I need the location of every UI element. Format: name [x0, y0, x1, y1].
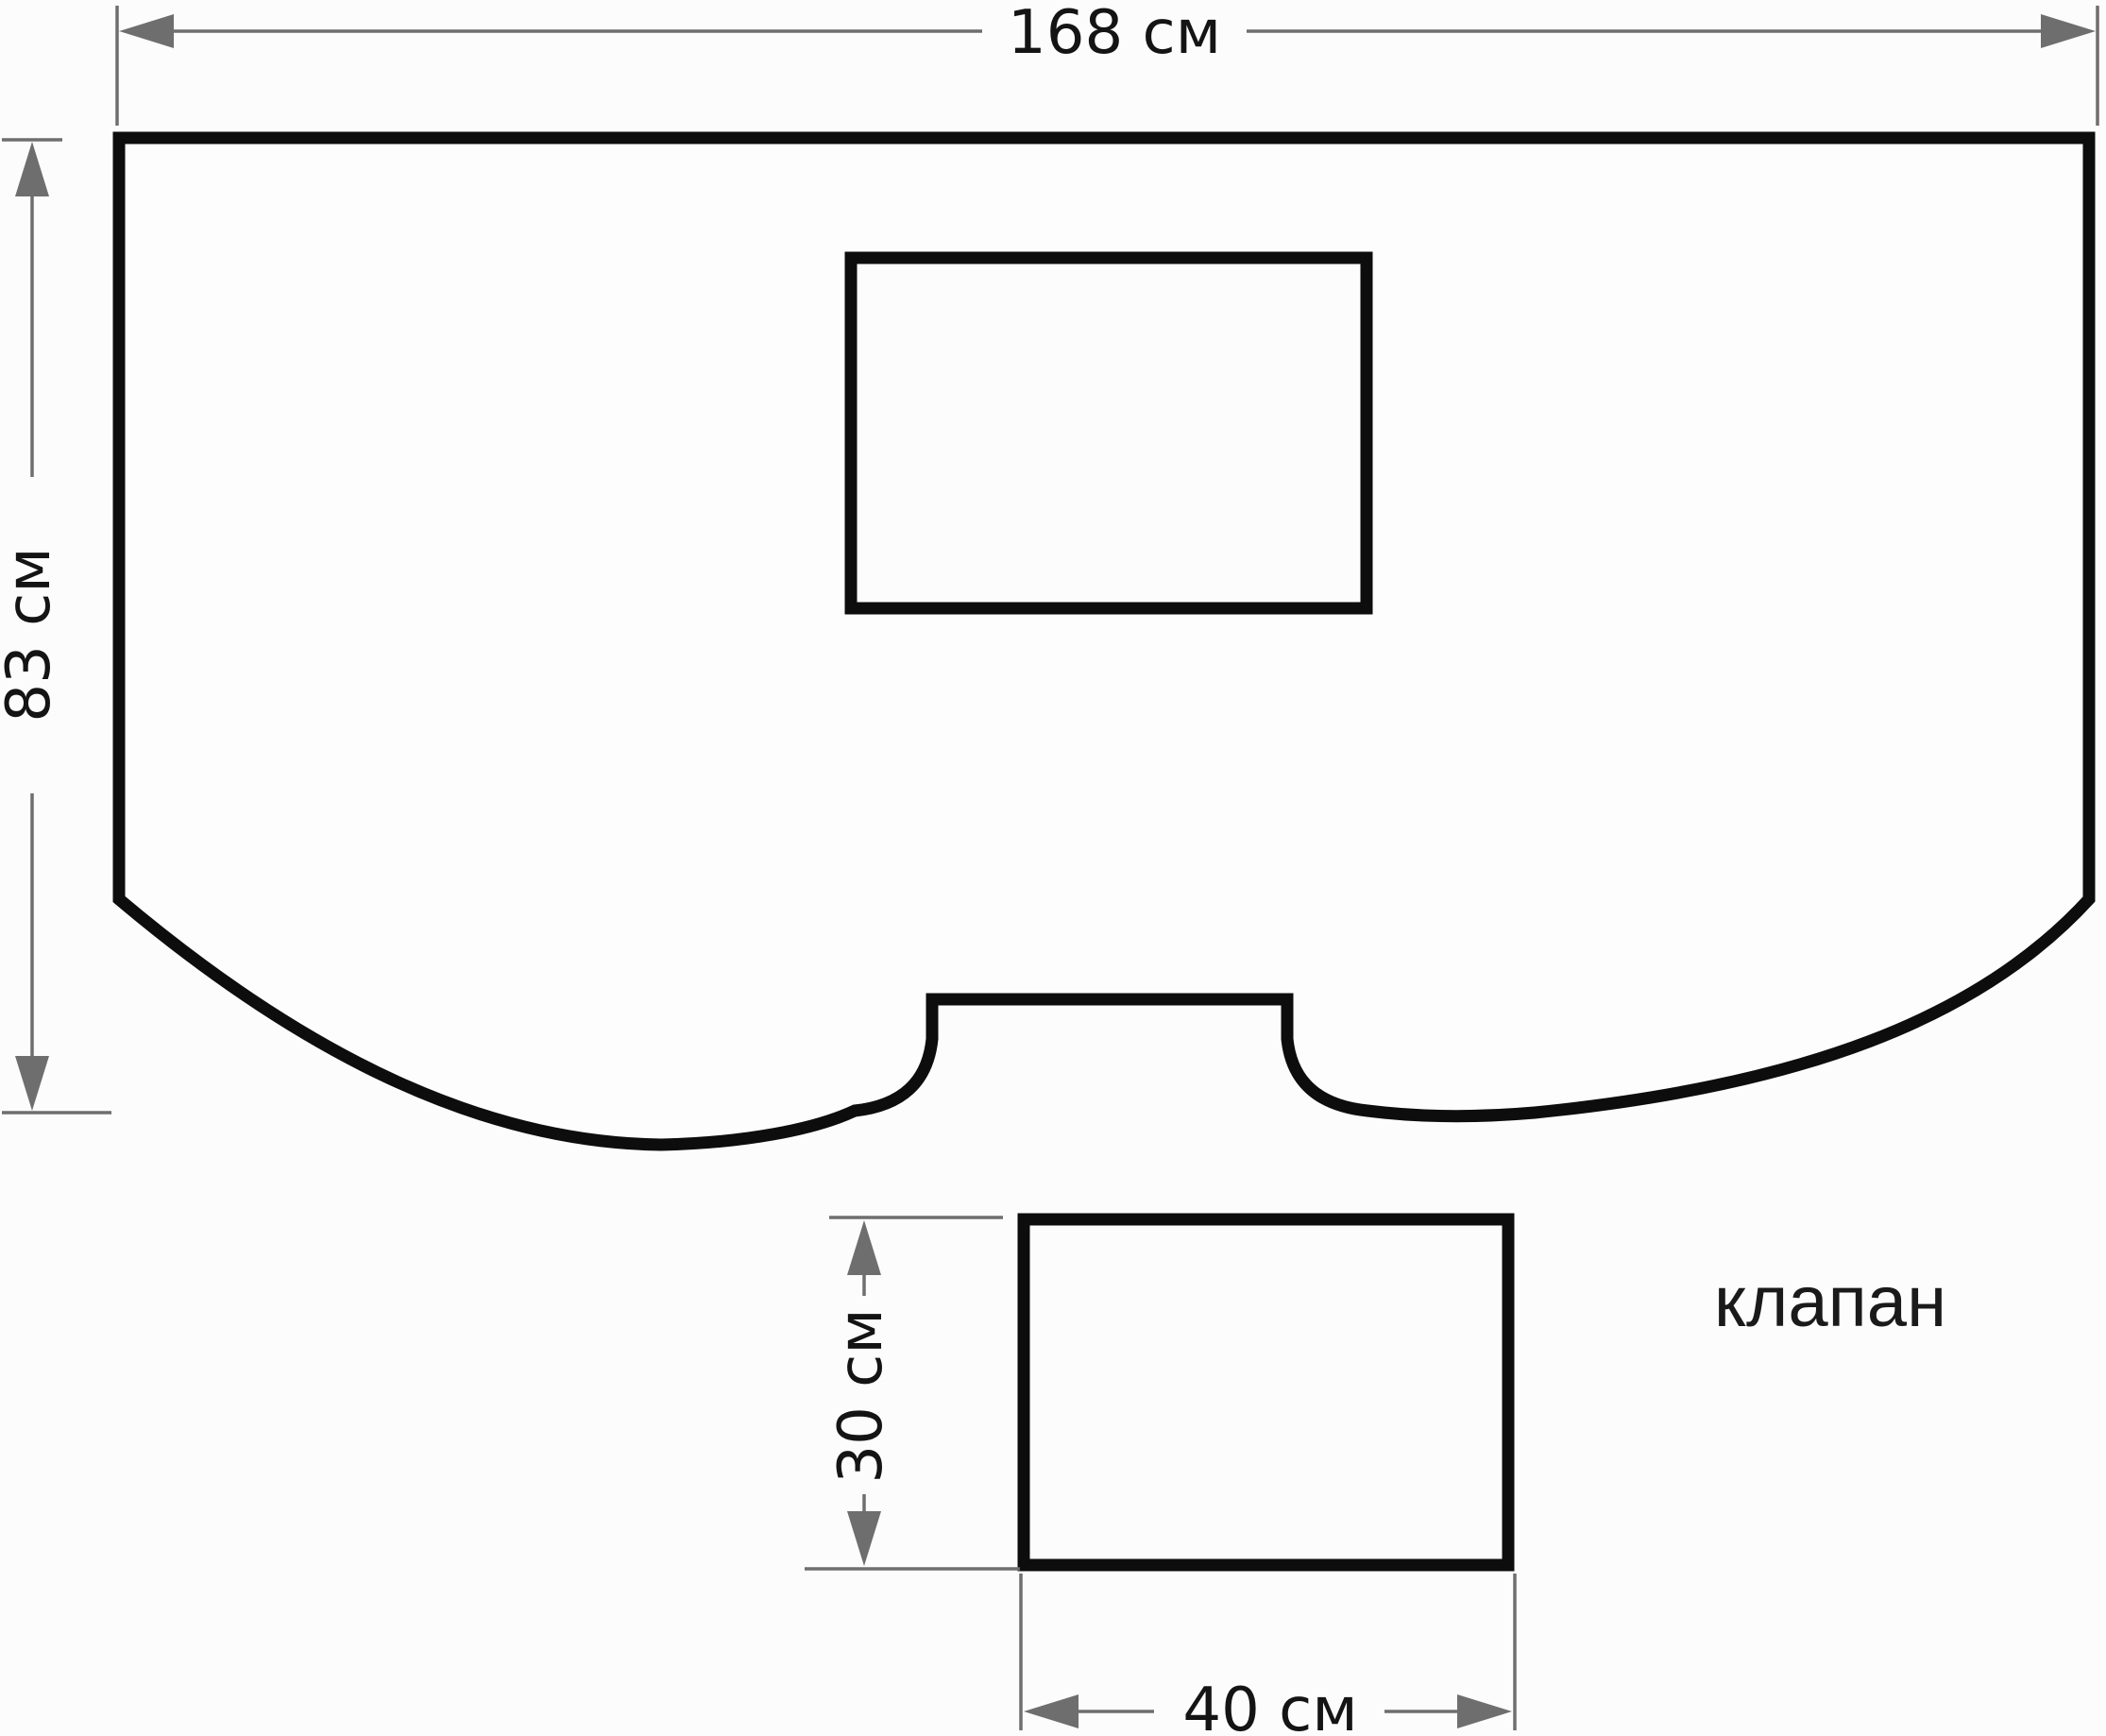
arrow-up-icon — [15, 142, 49, 196]
flap-width-dimension-40: 40 см — [1021, 1574, 1515, 1736]
arrow-down-icon — [847, 1511, 881, 1566]
flap-width-label: 40 см — [1182, 1676, 1357, 1736]
flap-rectangle — [1024, 1219, 1508, 1565]
flap-height-dimension-30: 30 см — [805, 1217, 1020, 1569]
window-cutout-rectangle — [851, 258, 1367, 608]
main-width-label: 168 см — [1008, 0, 1221, 68]
flap-height-label: 30 см — [826, 1308, 896, 1483]
pattern-diagram: 168 см 83 см 30 см — [0, 0, 2106, 1736]
width-dimension-168: 168 см — [117, 0, 2098, 126]
arrow-down-icon — [15, 1056, 49, 1111]
height-dimension-83: 83 см — [0, 140, 111, 1113]
pattern-diagram-canvas: 168 см 83 см 30 см — [0, 0, 2106, 1736]
main-height-label: 83 см — [0, 547, 64, 722]
arrow-up-icon — [847, 1220, 881, 1275]
arrow-left-icon — [1024, 1694, 1078, 1728]
arrow-right-icon — [2041, 14, 2096, 48]
arrow-left-icon — [119, 14, 174, 48]
arrow-right-icon — [1457, 1694, 1512, 1728]
flap-caption: клапан — [1714, 1262, 1946, 1342]
